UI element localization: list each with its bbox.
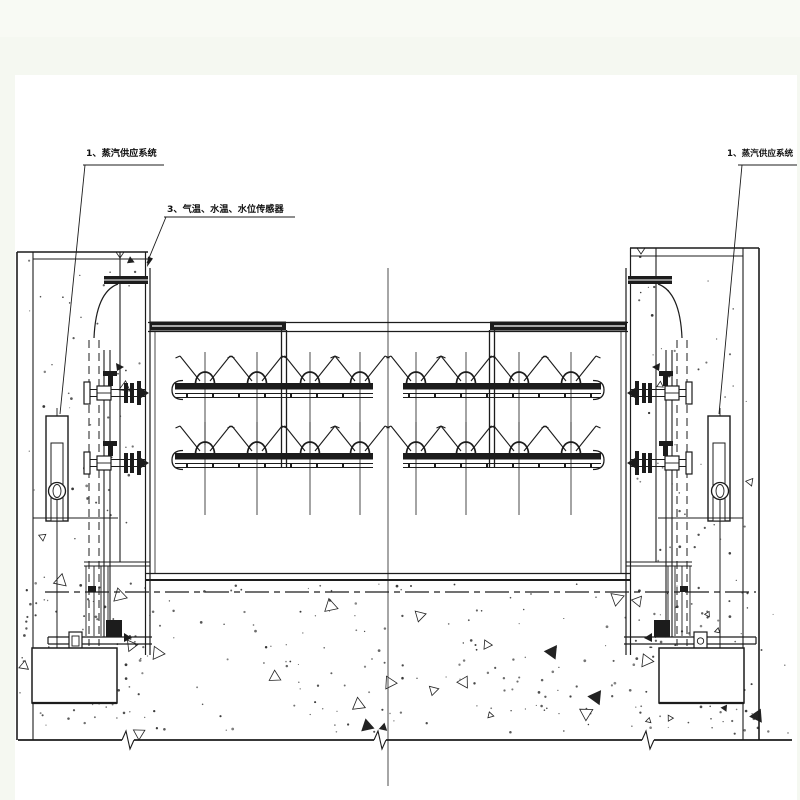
valve-handle xyxy=(103,441,117,446)
drawing-sheet: 1、蒸汽供应系统 3、气温、水温、水位传感器 1、蒸汽供应系统 xyxy=(0,0,800,800)
valve-handle xyxy=(659,371,673,376)
pier-footing-box xyxy=(32,648,117,703)
pipe-anchor xyxy=(106,620,122,637)
valve-handle xyxy=(103,371,117,376)
label-steam-supply-right: 1、蒸汽供应系统 xyxy=(727,147,794,159)
label-sensors: 3、气温、水温、水位传感器 xyxy=(167,203,284,215)
background-band xyxy=(0,0,800,37)
label-steam-supply-left: 1、蒸汽供应系统 xyxy=(86,147,157,159)
engineering-drawing: 1、蒸汽供应系统 3、气温、水温、水位传感器 1、蒸汽供应系统 xyxy=(0,0,800,800)
pipe-anchor xyxy=(654,620,670,637)
valve-handle xyxy=(659,441,673,446)
pier-footing-box xyxy=(659,648,744,703)
